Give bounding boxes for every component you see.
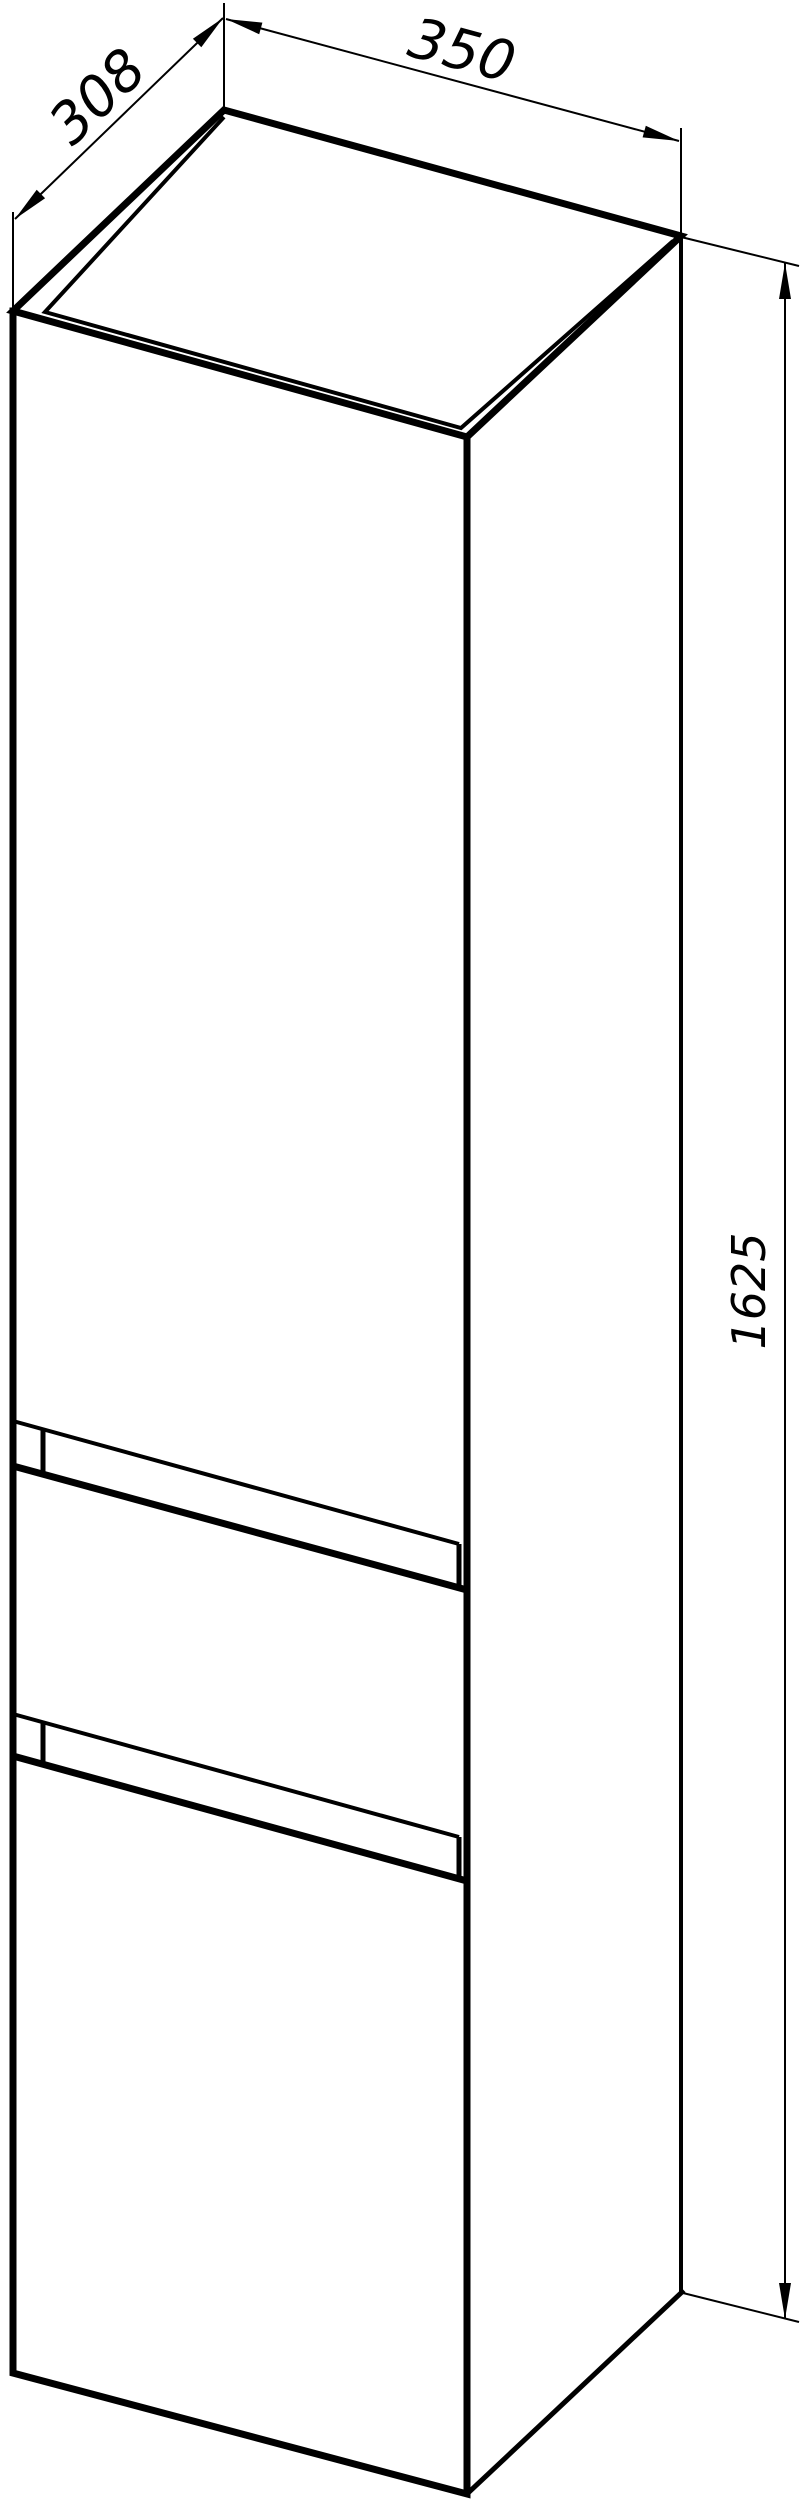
arrowhead-icon (15, 190, 45, 219)
dimension-depth: 308 (13, 3, 224, 309)
dimension-height-label: 1625 (722, 1232, 776, 1349)
dimension-height: 1625 (681, 237, 799, 2322)
top-face-outline (13, 110, 681, 437)
side-bottom-edge (467, 2292, 682, 2494)
arrowhead-icon (226, 19, 262, 34)
arrowhead-icon (193, 18, 223, 47)
cabinet-technical-drawing: 308 350 1625 (0, 0, 803, 2505)
handle-groove-lower (13, 1714, 467, 1881)
dimension-width-label: 350 (402, 6, 522, 96)
dimension-depth-label: 308 (37, 36, 159, 157)
front-face-outline (13, 311, 467, 2494)
cabinet-body (13, 110, 682, 2494)
dimension-width: 350 (226, 6, 681, 234)
arrowhead-icon (643, 126, 679, 141)
arrowhead-icon (779, 263, 791, 299)
extension-line (681, 237, 799, 266)
handle-groove-upper (13, 1421, 467, 1590)
arrowhead-icon (779, 2283, 791, 2319)
top-face-inner-rim (45, 117, 673, 428)
drawing-canvas: 308 350 1625 (0, 0, 803, 2505)
